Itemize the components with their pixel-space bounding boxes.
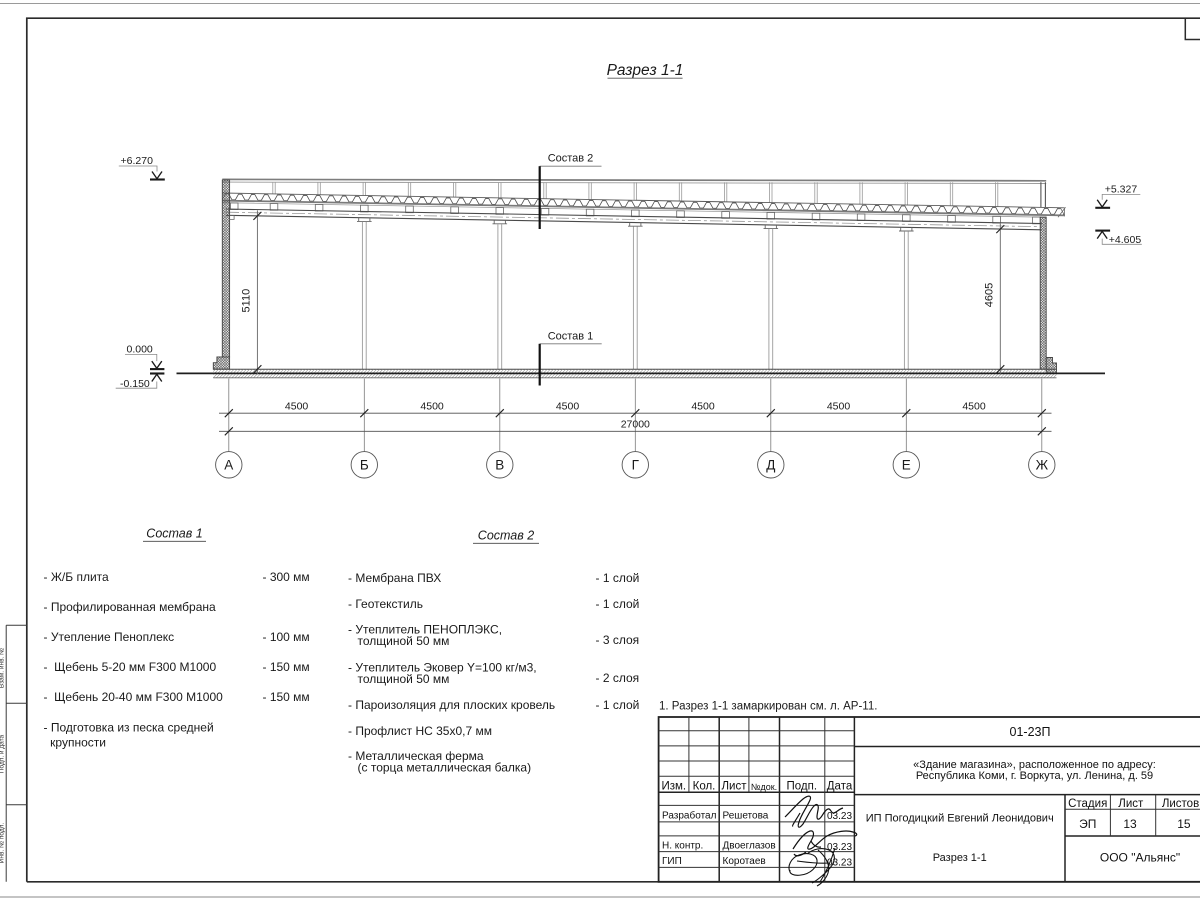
svg-text:- Мембрана ПВХ: - Мембрана ПВХ [348,571,441,585]
svg-text:- Щебень 5-20 мм F300 М1000: - Щебень 5-20 мм F300 М1000 [44,660,217,674]
svg-text:Разработал: Разработал [662,810,717,822]
svg-text:ГИП: ГИП [662,856,682,867]
svg-text:+6.270: +6.270 [121,155,154,167]
svg-text:Лист: Лист [722,780,748,792]
svg-text:Коротаев: Коротаев [723,856,766,867]
svg-text:Е: Е [902,458,911,473]
svg-text:- Подготовка из песка средней: - Подготовка из песка средней [44,721,214,735]
svg-text:- 300 мм: - 300 мм [263,570,310,584]
svg-text:В: В [495,458,504,473]
svg-text:толщиной 50 мм: толщиной 50 мм [358,672,450,686]
svg-text:Взам. инв. №: Взам. инв. № [0,648,6,688]
svg-text:- 150 мм: - 150 мм [263,690,310,704]
svg-text:(с торца металлическая балка): (с торца металлическая балка) [358,761,532,775]
svg-text:- Профлист НС 35х0,7 мм: - Профлист НС 35х0,7 мм [348,724,492,738]
svg-text:27000: 27000 [621,419,650,431]
svg-text:толщиной 50 мм: толщиной 50 мм [358,634,450,648]
svg-text:Кол.: Кол. [693,780,716,792]
svg-text:- Утепление Пеноплекс: - Утепление Пеноплекс [44,630,175,644]
svg-text:4500: 4500 [827,401,851,413]
svg-text:0.000: 0.000 [127,343,153,355]
svg-text:Разрез 1-1: Разрез 1-1 [607,62,684,79]
svg-text:Двоеглазов: Двоеглазов [723,840,776,851]
svg-text:№док.: №док. [751,782,777,792]
svg-text:Республика Коми, г. Воркута, у: Республика Коми, г. Воркута, ул. Ленина,… [916,770,1153,782]
svg-text:4605: 4605 [983,283,995,307]
svg-text:- Щебень 20-40 мм F300 М1000: - Щебень 20-40 мм F300 М1000 [44,690,224,704]
svg-text:Н. контр.: Н. контр. [662,840,703,851]
svg-text:4500: 4500 [962,401,986,413]
svg-text:- 150 мм: - 150 мм [263,660,310,674]
svg-text:- 100 мм: - 100 мм [263,630,310,644]
svg-text:Лист: Лист [1118,798,1144,810]
svg-text:- 3 слоя: - 3 слоя [596,633,640,647]
svg-text:Дата: Дата [827,780,853,792]
svg-text:- Пароизоляция для плоских кро: - Пароизоляция для плоских кровель [348,698,555,712]
svg-text:03.23: 03.23 [827,811,852,822]
svg-text:- 2 слоя: - 2 слоя [596,671,640,685]
svg-text:Решетова: Решетова [723,811,769,822]
svg-text:крупности: крупности [44,736,106,750]
svg-text:01-23П: 01-23П [1010,725,1051,739]
svg-text:- Геотекстиль: - Геотекстиль [348,597,423,611]
svg-text:Состав 1: Состав 1 [146,527,202,541]
svg-text:А: А [224,458,233,473]
svg-text:5110: 5110 [240,289,252,313]
svg-text:- 1 слой: - 1 слой [596,698,640,712]
svg-text:Подп.: Подп. [787,780,818,792]
svg-text:ЭП: ЭП [1079,817,1096,831]
svg-text:- Профилированная мембрана: - Профилированная мембрана [44,600,216,614]
svg-text:ООО "Альянс": ООО "Альянс" [1100,851,1180,865]
svg-text:Состав 2: Состав 2 [548,152,594,164]
svg-text:1. Разрез 1-1 замаркирован см.: 1. Разрез 1-1 замаркирован см. л. АР-11. [659,701,877,713]
svg-text:15: 15 [1177,817,1191,831]
svg-text:Разрез 1-1: Разрез 1-1 [933,852,987,864]
svg-text:Б: Б [360,458,369,473]
svg-text:13: 13 [1123,817,1137,831]
svg-text:Изм.: Изм. [661,780,686,792]
svg-text:Инв. № подл.: Инв. № подл. [0,823,6,864]
svg-text:4500: 4500 [420,401,444,413]
svg-text:Состав 2: Состав 2 [478,529,534,543]
svg-text:4500: 4500 [285,401,309,413]
svg-text:Стадия: Стадия [1068,798,1107,810]
svg-text:4500: 4500 [691,401,715,413]
svg-text:- 1 слой: - 1 слой [596,571,640,585]
svg-text:ИП Погодицкий Евгений Леонидов: ИП Погодицкий Евгений Леонидович [866,813,1054,825]
svg-text:Состав 1: Состав 1 [548,331,594,343]
svg-text:Д: Д [766,458,775,473]
svg-text:- Ж/Б плита: - Ж/Б плита [44,570,110,584]
svg-text:Г: Г [632,458,640,473]
svg-text:+5.327: +5.327 [1105,183,1138,195]
svg-text:Подп. и дата: Подп. и дата [0,734,6,773]
svg-text:- 1 слой: - 1 слой [596,597,640,611]
svg-text:4500: 4500 [556,401,580,413]
svg-text:Листов: Листов [1162,798,1199,810]
svg-text:Ж: Ж [1036,458,1049,473]
